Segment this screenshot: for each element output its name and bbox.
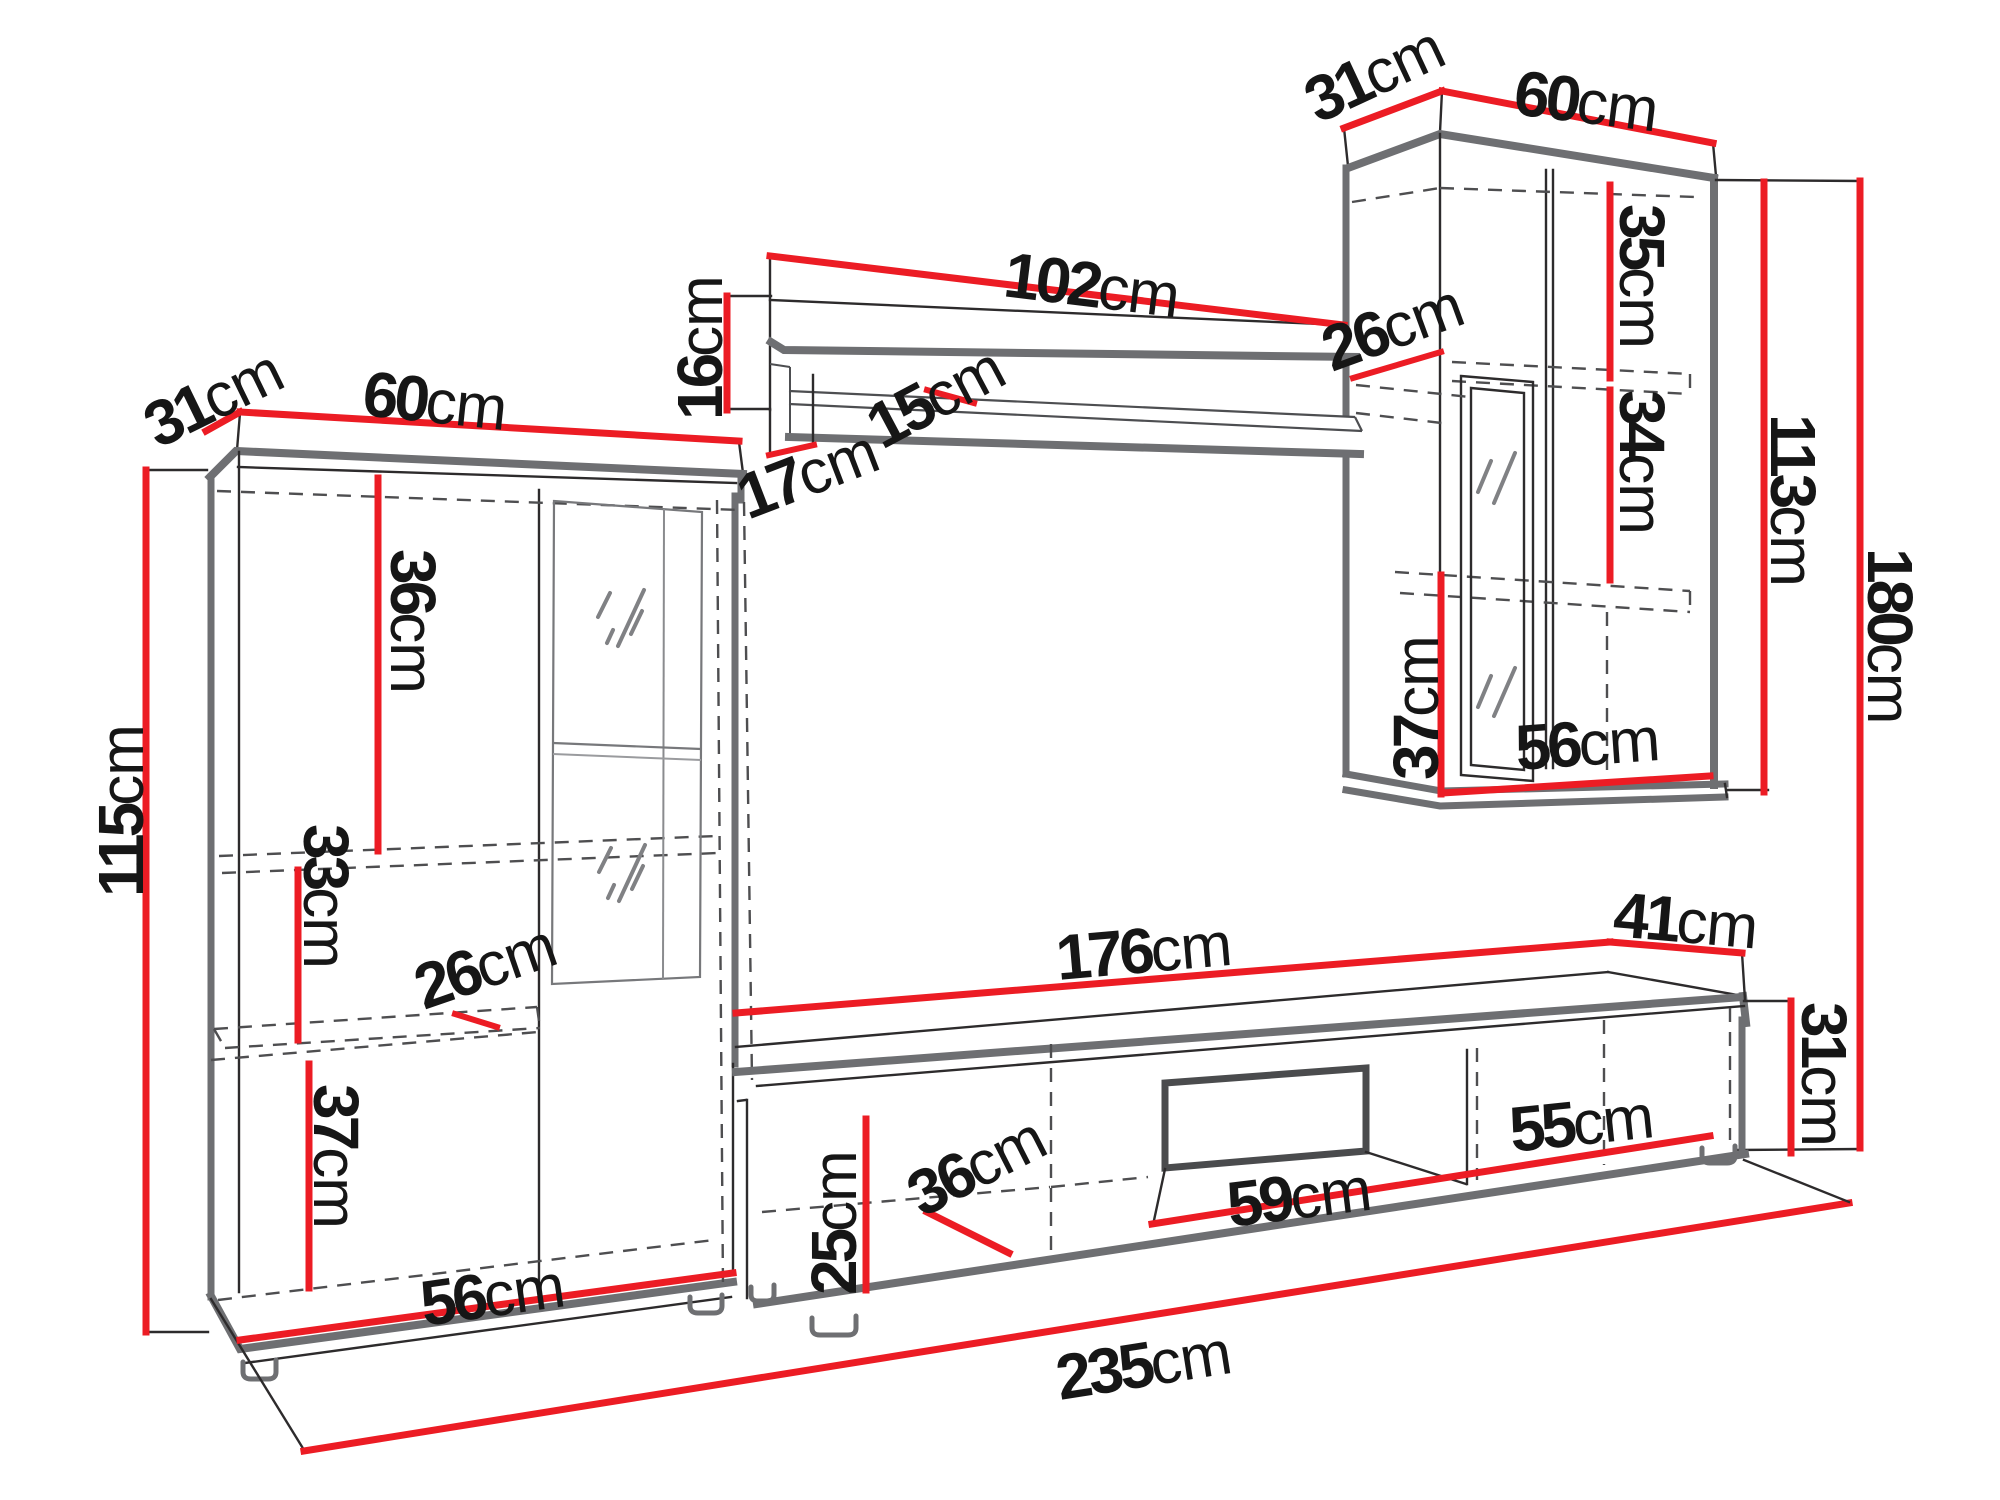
svg-text:16cm: 16cm xyxy=(664,276,736,420)
svg-text:41cm: 41cm xyxy=(1611,878,1761,962)
svg-text:25cm: 25cm xyxy=(798,1151,870,1295)
svg-text:36cm: 36cm xyxy=(377,549,449,693)
svg-text:35cm: 35cm xyxy=(1606,204,1678,348)
svg-text:34cm: 34cm xyxy=(1606,390,1678,534)
svg-text:55cm: 55cm xyxy=(1506,1079,1657,1166)
svg-text:31cm: 31cm xyxy=(1788,1002,1860,1146)
svg-text:180cm: 180cm xyxy=(1854,548,1926,723)
svg-text:176cm: 176cm xyxy=(1053,907,1234,994)
svg-text:37cm: 37cm xyxy=(300,1084,372,1228)
svg-text:56cm: 56cm xyxy=(1513,702,1662,784)
svg-text:115cm: 115cm xyxy=(85,725,157,897)
svg-text:37cm: 37cm xyxy=(1380,636,1452,780)
svg-text:33cm: 33cm xyxy=(290,824,362,968)
svg-text:113cm: 113cm xyxy=(1757,414,1829,586)
